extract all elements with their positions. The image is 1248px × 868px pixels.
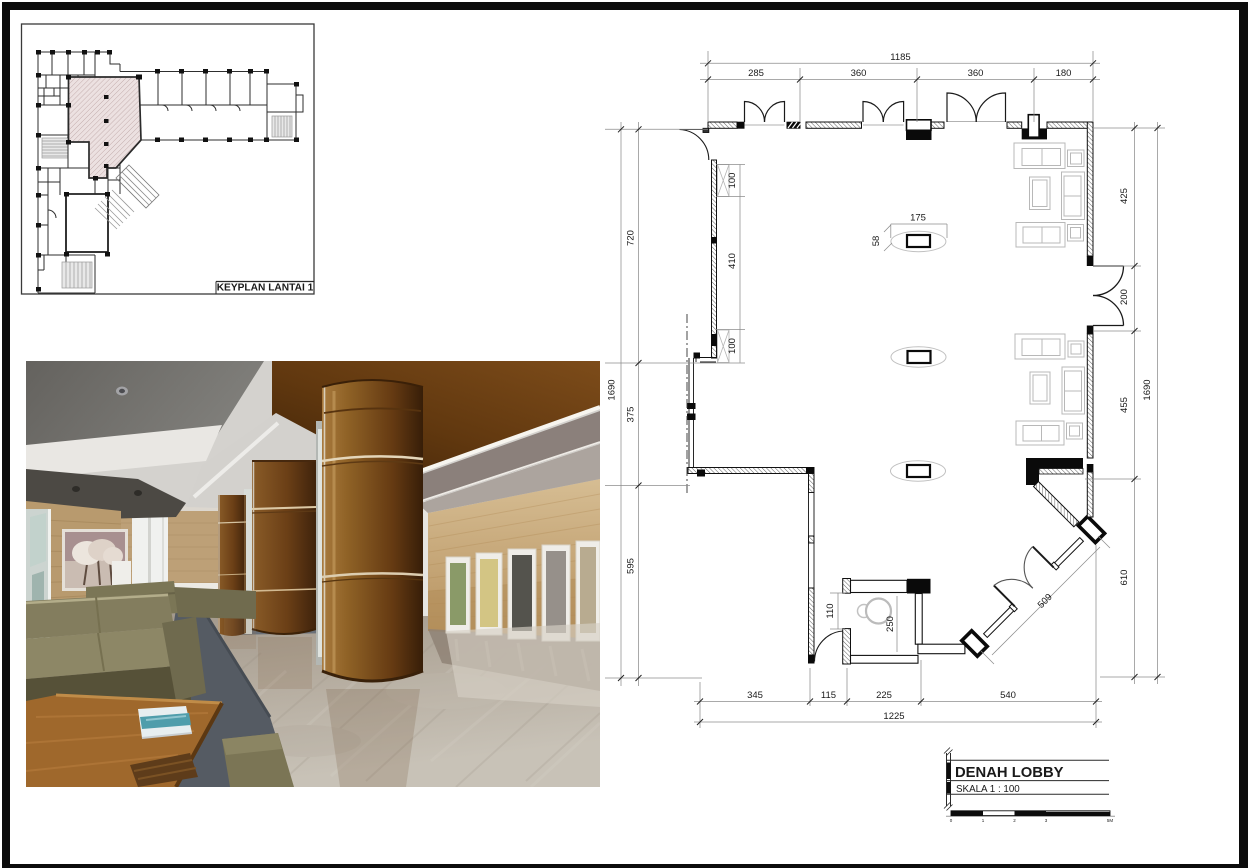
svg-text:345: 345 <box>747 690 763 701</box>
svg-text:225: 225 <box>876 690 892 701</box>
svg-text:1690: 1690 <box>1142 379 1153 400</box>
svg-text:100: 100 <box>727 338 738 354</box>
svg-text:285: 285 <box>748 68 764 79</box>
svg-text:100: 100 <box>727 173 738 189</box>
svg-text:110: 110 <box>825 603 836 618</box>
svg-text:410: 410 <box>727 253 738 269</box>
svg-text:375: 375 <box>626 407 637 423</box>
svg-text:SKALA 1 : 100: SKALA 1 : 100 <box>956 784 1020 795</box>
svg-text:1225: 1225 <box>883 711 904 722</box>
svg-text:250: 250 <box>885 616 896 632</box>
svg-text:58: 58 <box>871 236 882 247</box>
svg-text:540: 540 <box>1000 690 1016 701</box>
svg-text:360: 360 <box>851 68 867 79</box>
svg-text:425: 425 <box>1119 188 1130 204</box>
svg-text:455: 455 <box>1119 397 1130 413</box>
svg-text:KEYPLAN LANTAI 1: KEYPLAN LANTAI 1 <box>217 283 314 294</box>
svg-text:200: 200 <box>1119 289 1130 305</box>
svg-text:115: 115 <box>821 690 836 701</box>
svg-text:180: 180 <box>1056 68 1072 79</box>
svg-text:595: 595 <box>626 558 637 574</box>
svg-text:610: 610 <box>1119 570 1130 586</box>
svg-text:720: 720 <box>626 230 637 246</box>
svg-text:360: 360 <box>968 68 984 79</box>
svg-text:175: 175 <box>910 213 926 224</box>
svg-text:DENAH LOBBY: DENAH LOBBY <box>955 765 1064 781</box>
svg-text:5M: 5M <box>1107 818 1114 823</box>
svg-text:1185: 1185 <box>890 52 910 63</box>
svg-text:1690: 1690 <box>607 379 618 400</box>
